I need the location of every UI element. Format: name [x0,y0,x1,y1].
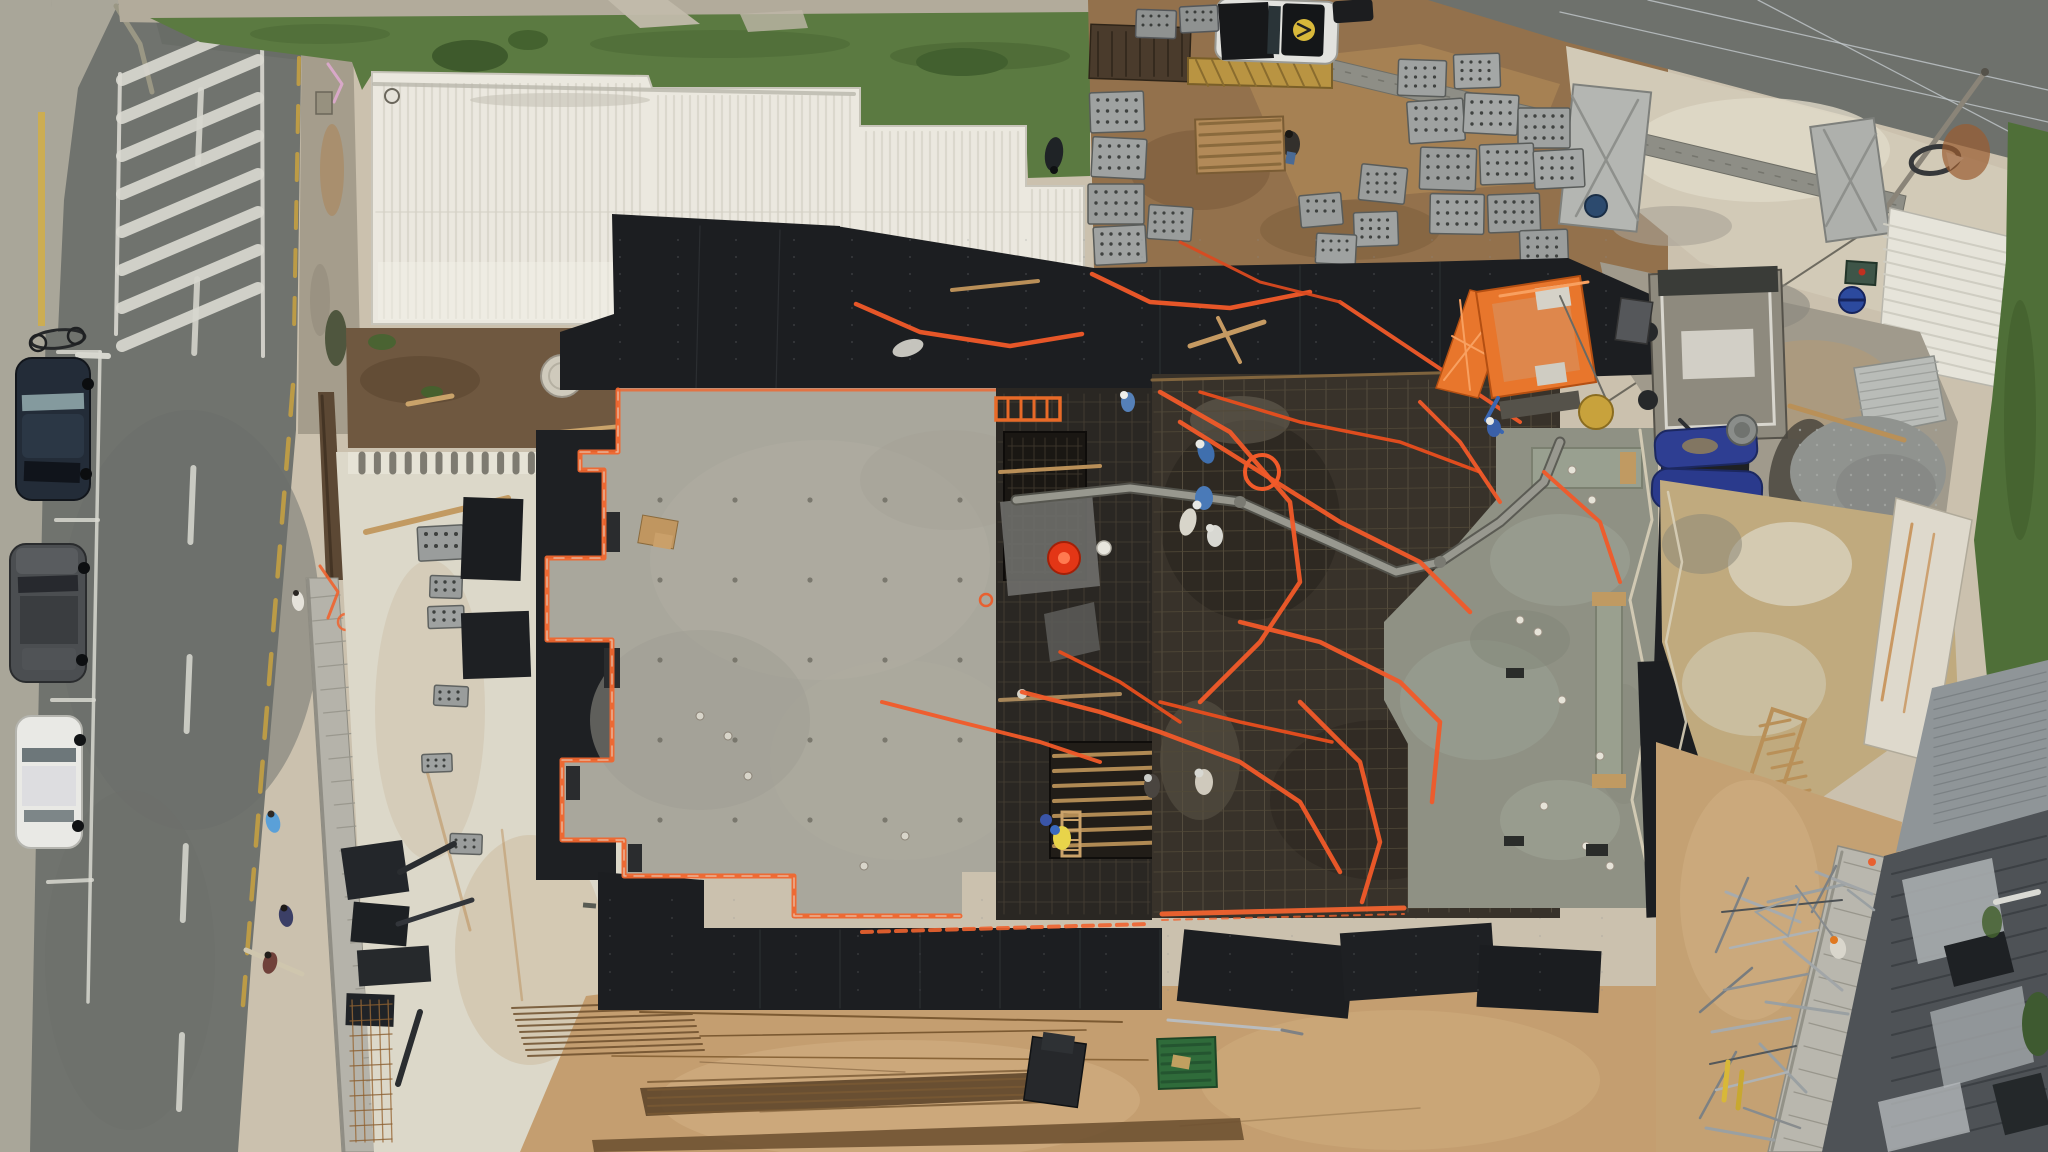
blue-keg [1040,814,1052,826]
car-white-wheel-f [74,734,86,746]
small-stack [417,525,465,561]
block-stack [1179,5,1218,33]
parking-tick-4 [48,880,92,882]
br-vegetation-2 [1982,906,2002,938]
apron-w3 [461,611,531,679]
wet-recess-wood-e [1620,452,1636,484]
grass-shade-2 [590,30,850,58]
mixer-wheel-2 [1638,390,1658,410]
block-stack [1299,192,1344,228]
pedestrian-head [268,811,275,818]
slab-cap-5 [860,862,868,870]
shrub-3 [916,48,1008,76]
slab-slot-3 [566,766,580,800]
apron-s2 [704,928,1162,1010]
car-gray-rear [22,648,76,670]
block-stack [1419,147,1476,191]
tactile-strip [38,112,45,326]
wet-cap [1606,862,1614,870]
block-stack [1407,98,1466,144]
car-gray-wheel-r [76,654,88,666]
slab-cap-2 [724,732,732,740]
car-navy-wheel-f [82,378,94,390]
slab-cap-3 [744,772,752,780]
wet-recess-wood-n [1592,592,1626,606]
yard-person-head [1285,130,1293,138]
shrub-2 [508,30,548,50]
hatch-border-right [262,12,263,356]
white-bucket [1097,541,1111,555]
teal-box-dot [1859,269,1866,276]
roof-vent [385,89,399,103]
garden-texture [360,356,480,404]
wet-cap [1540,802,1548,810]
slab-slot-4 [628,844,642,872]
car-gray-roof [20,596,78,644]
worker-helmet [1144,774,1152,782]
wet-cap [1596,752,1604,760]
worker-helmet [1196,440,1205,449]
yellow-bucket [1579,395,1613,429]
tan-light-2 [1200,1010,1600,1150]
block-stack [1353,211,1398,247]
car-white-roof [22,766,76,806]
wet-cap [1534,628,1542,636]
wg-stain-1 [375,560,485,860]
red-hose-coil-center [1058,552,1070,564]
worker-helmet [1206,524,1214,532]
block-stack [1358,164,1408,205]
small-stack [433,685,468,707]
wet-cap [1516,616,1524,624]
car-white-windshield [22,748,76,762]
rust-patch [1942,124,1990,180]
worker-orange-helmet [1830,936,1838,944]
hoist-box-2 [1535,362,1567,386]
worker-helmet [1193,501,1202,510]
worker-helmet [1120,391,1128,399]
orange-mark-wall [1868,858,1876,866]
wet-cap [1568,466,1576,474]
construction-site-aerial-photo [0,0,2048,1152]
car-ne-hood [1218,2,1274,60]
car-ne-badge [1293,19,1315,41]
pedestrian-head [265,952,272,959]
wet-black-3 [1504,836,1524,846]
blue-bin [1585,195,1607,217]
garden-weeds-1 [368,334,396,350]
sidewalk-stain-1 [320,124,344,216]
roof-smudge [470,93,650,107]
slab-light-2 [770,660,1030,860]
mixer-engine [1658,266,1779,296]
gray-panel-1 [1000,492,1100,596]
block-stack [1315,233,1357,265]
utility-box [316,92,332,114]
slab-cap-1 [696,712,704,720]
apron-w2 [461,497,524,581]
car-navy-windshield [22,393,85,411]
worker-helmet [1486,417,1494,425]
car-navy-rear-glass [24,461,81,483]
motorcycle-wheel [1050,166,1058,174]
suv-partial [1332,0,1373,23]
shrub-1 [432,40,508,72]
pipe-joint-1 [1234,496,1246,508]
wet-black-2 [1586,844,1608,856]
slab-cap-4 [901,832,909,840]
formwork-pile-3 [357,946,431,987]
wet-cap [1588,496,1596,504]
wet-recess-wood-s [1592,774,1626,788]
bucket-gray-inner [1734,422,1750,438]
wet-cap [1558,696,1566,704]
apron-s4 [1340,923,1496,1001]
small-stack [430,575,463,598]
pipe-joint-2 [1434,556,1446,568]
pole-cap [1981,68,1989,76]
hedge [325,310,347,366]
pedestrian-head [281,905,288,912]
grass-shade-1 [250,24,390,44]
car-navy-roof [22,414,84,458]
aerial-photo-stage [0,0,2048,1152]
mixer-plate [1681,329,1755,379]
wet-black-1 [1506,668,1524,678]
car-gray-wheel-f [78,562,90,574]
car-gray-windshield [18,575,79,593]
worker-blue-helmet [1050,825,1060,835]
apron-s5 [1476,945,1601,1013]
car-navy-wheel-r [80,468,92,480]
apron-s1 [598,872,704,1010]
grass-east-shade [2004,300,2036,540]
barrel-stain [1682,438,1718,454]
small-stack [428,605,465,628]
pedestrian-head [293,590,299,596]
sand-mid-cement-1 [1728,522,1852,606]
worker-helmet [1195,769,1204,778]
car-white-rear-glass [24,810,74,822]
car-gray-hood [16,548,78,574]
hand-cart [1615,298,1653,344]
car-white-wheel-r [72,820,84,832]
car-ne-glass [1267,6,1281,54]
stop-bar [78,355,108,356]
small-stack [422,753,453,772]
block-stack [1136,9,1177,38]
